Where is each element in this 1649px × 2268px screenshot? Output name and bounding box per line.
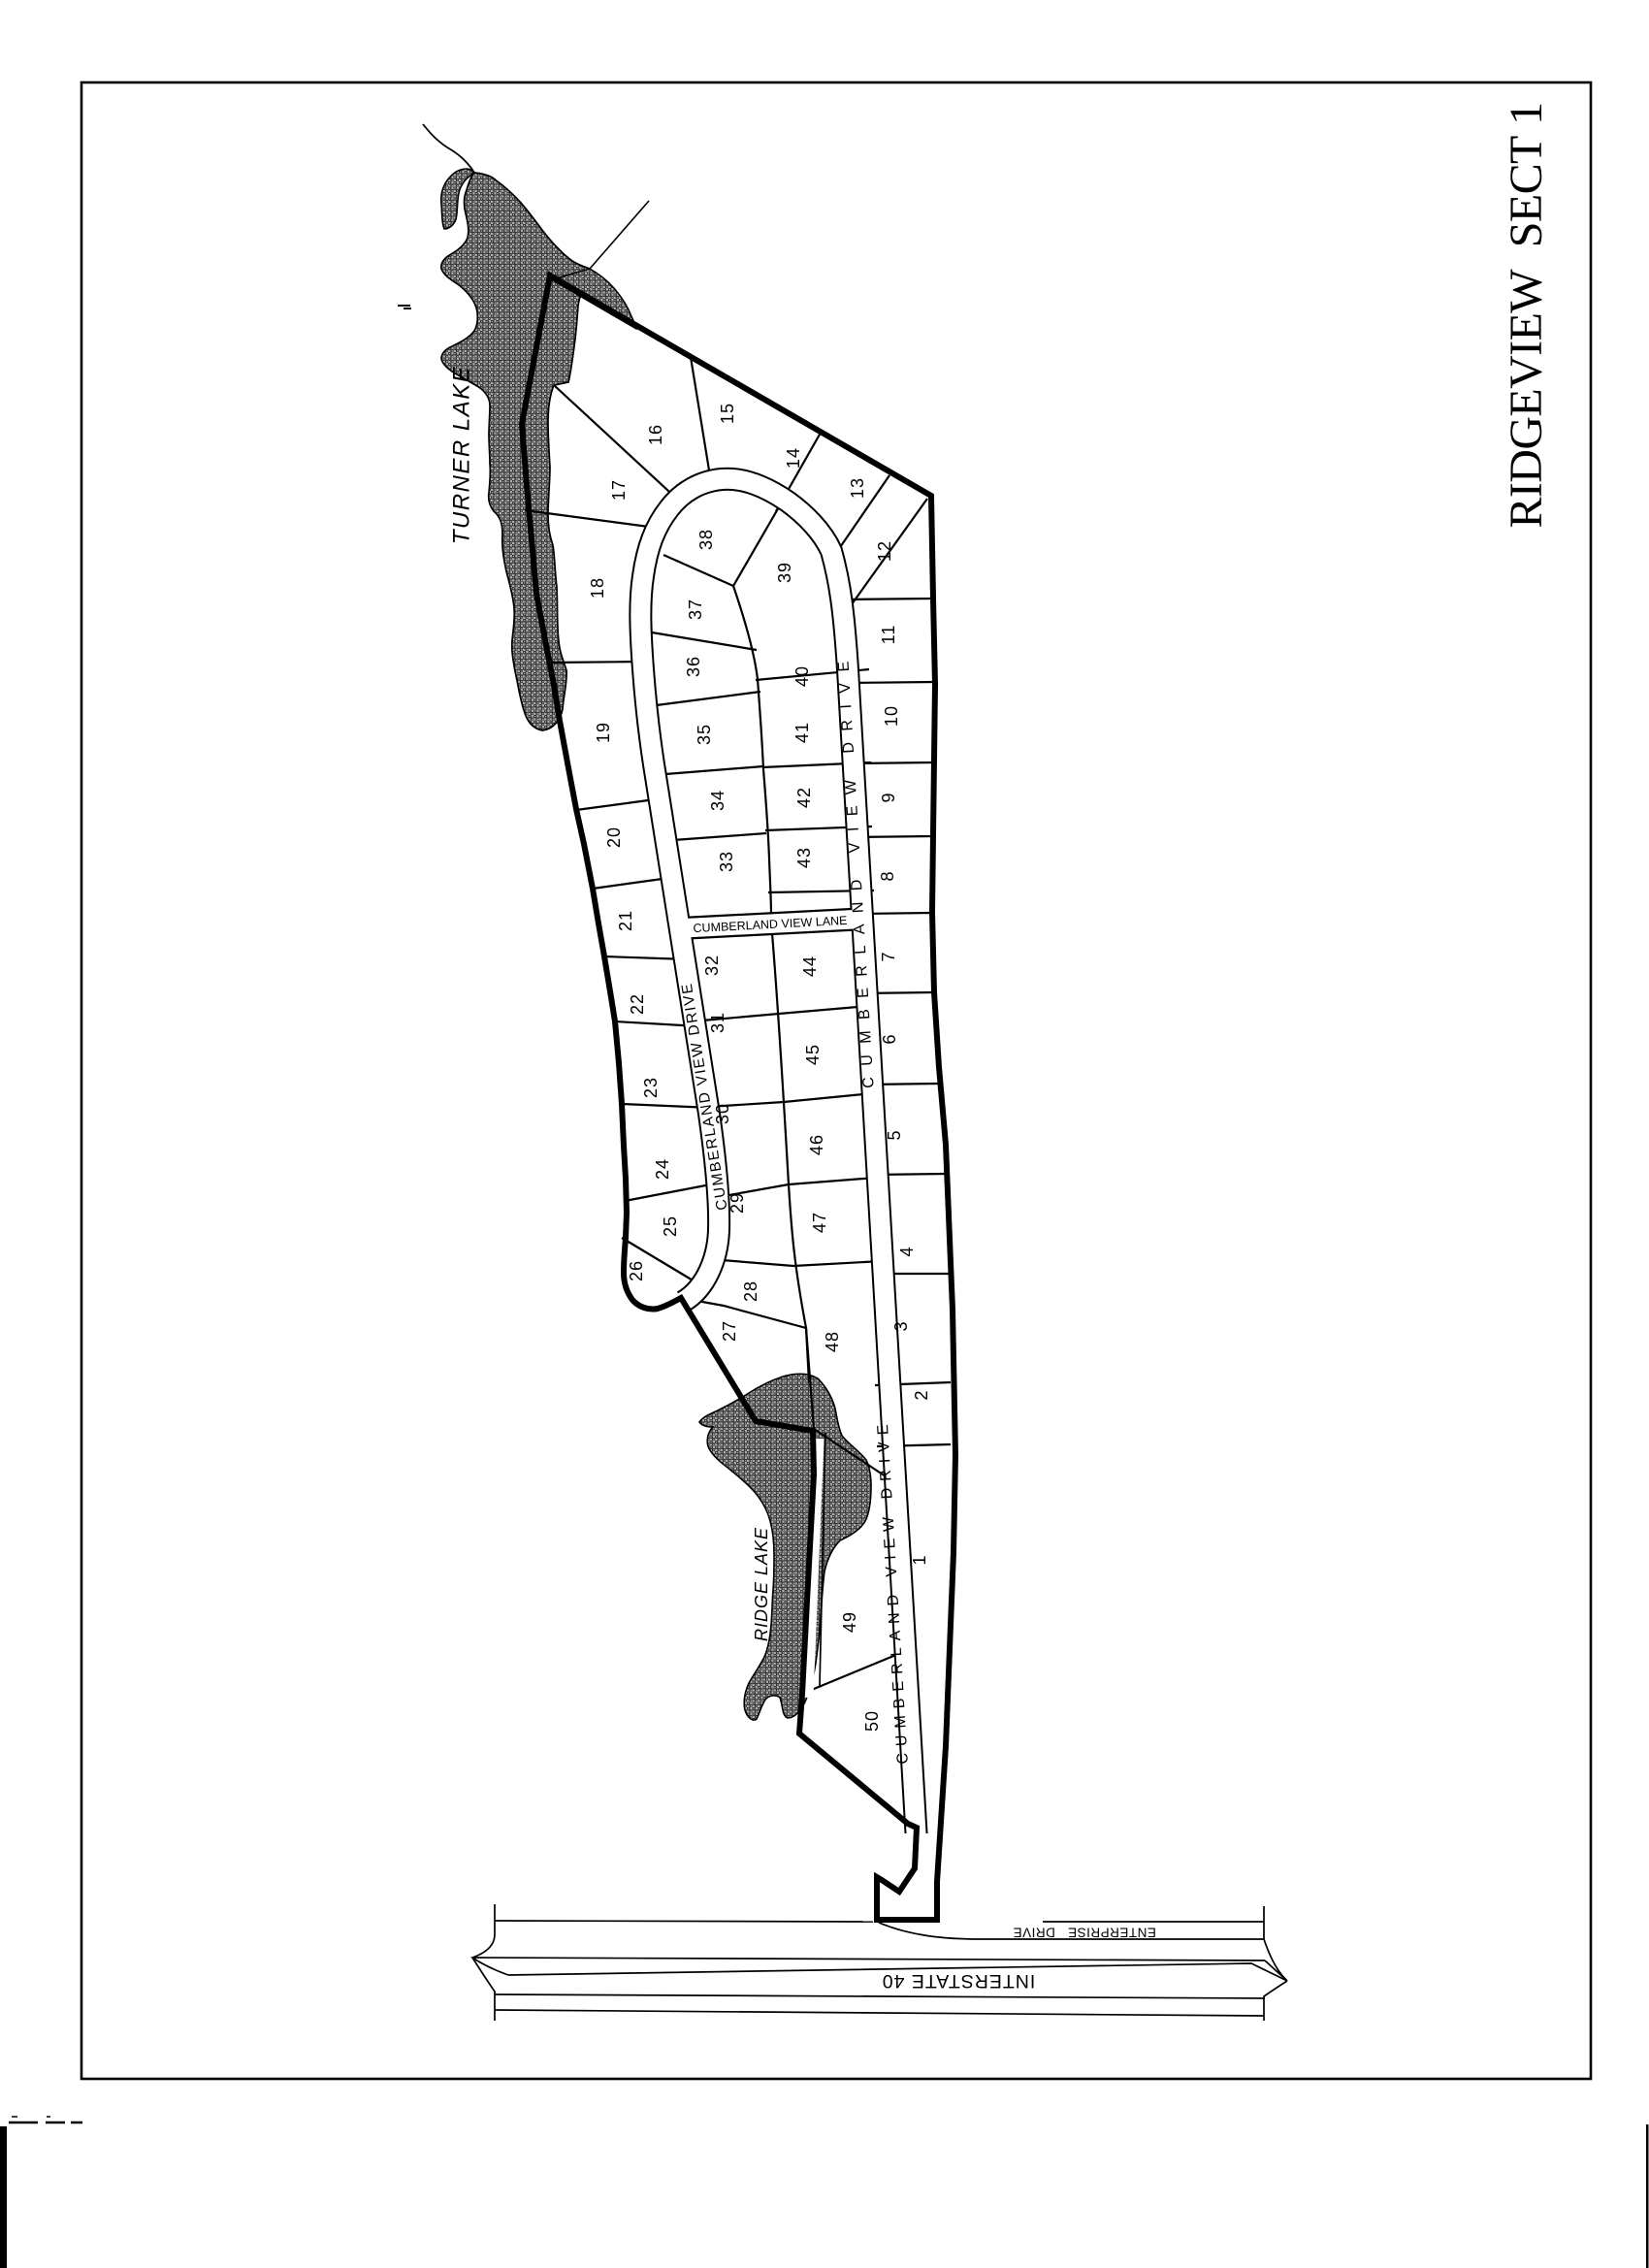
svg-text:37: 37 [686,599,705,620]
svg-text:42: 42 [794,787,814,808]
svg-text:23: 23 [641,1077,661,1098]
svg-text:RIDGEVIEW SECT 1: RIDGEVIEW SECT 1 [1501,102,1552,528]
svg-text:25: 25 [661,1215,680,1237]
svg-text:26: 26 [627,1260,646,1281]
svg-text:6: 6 [880,1033,899,1044]
svg-text:28: 28 [741,1280,760,1302]
svg-text:45: 45 [803,1044,823,1065]
svg-text:21: 21 [616,910,635,931]
svg-text:19: 19 [594,722,613,743]
svg-text:35: 35 [695,724,714,745]
svg-text:2: 2 [912,1389,931,1400]
svg-text:32: 32 [702,955,722,976]
svg-text:13: 13 [848,477,867,499]
svg-text:50: 50 [862,1710,882,1732]
svg-text:34: 34 [708,790,727,811]
svg-text:18: 18 [588,577,607,599]
svg-text:27: 27 [720,1320,739,1342]
svg-text:22: 22 [628,993,647,1015]
svg-text:49: 49 [840,1611,859,1633]
svg-text:TURNER LAKE: TURNER LAKE [448,366,474,545]
svg-text:48: 48 [823,1331,842,1352]
svg-text:40: 40 [792,665,812,687]
svg-text:ENTERPRISE DRIVE: ENTERPRISE DRIVE [1013,1925,1156,1939]
svg-text:5: 5 [885,1129,904,1140]
svg-text:31: 31 [708,1012,727,1033]
svg-text:46: 46 [807,1134,826,1155]
svg-text:36: 36 [684,656,703,677]
svg-text:9: 9 [879,792,898,802]
svg-text:41: 41 [792,722,812,743]
svg-text:39: 39 [775,562,794,583]
svg-text:20: 20 [604,826,624,848]
svg-text:RIDGE LAKE: RIDGE LAKE [752,1527,771,1641]
svg-text:INTERSTATE 40: INTERSTATE 40 [882,1970,1036,1992]
svg-text:44: 44 [800,956,820,977]
svg-text:47: 47 [810,1212,829,1233]
svg-text:14: 14 [784,447,803,469]
svg-text:12: 12 [875,540,894,562]
svg-text:10: 10 [882,705,901,727]
svg-text:8: 8 [878,870,897,881]
svg-text:15: 15 [718,403,737,424]
svg-text:33: 33 [717,851,736,872]
svg-text:11: 11 [879,625,898,645]
svg-text:38: 38 [696,529,716,550]
svg-text:1: 1 [910,1554,929,1565]
svg-text:17: 17 [609,479,629,501]
svg-text:16: 16 [646,424,665,445]
svg-text:7: 7 [879,951,898,961]
svg-text:4: 4 [897,1246,917,1256]
svg-text:3: 3 [891,1320,911,1331]
svg-text:43: 43 [794,847,814,868]
svg-text:24: 24 [653,1158,672,1180]
svg-text:29: 29 [727,1192,747,1214]
